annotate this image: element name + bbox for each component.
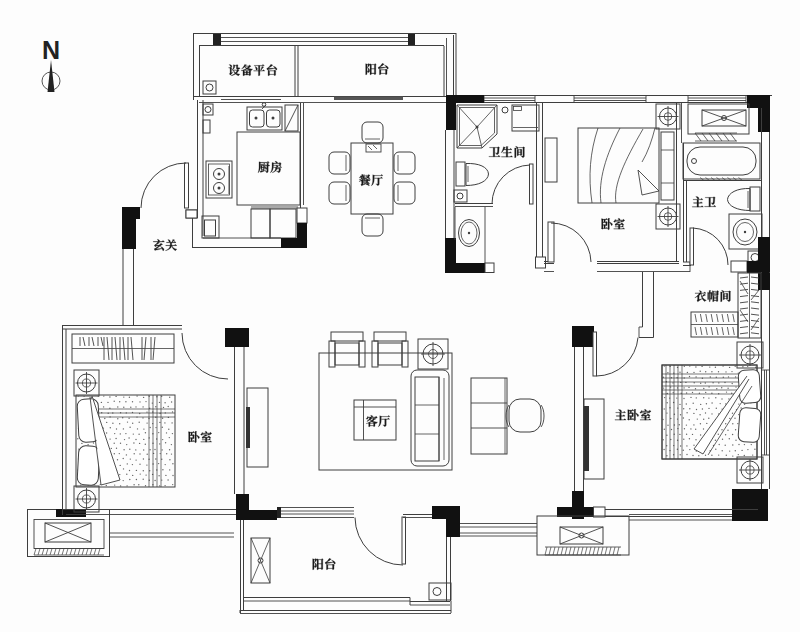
svg-text:N: N [42,36,60,64]
